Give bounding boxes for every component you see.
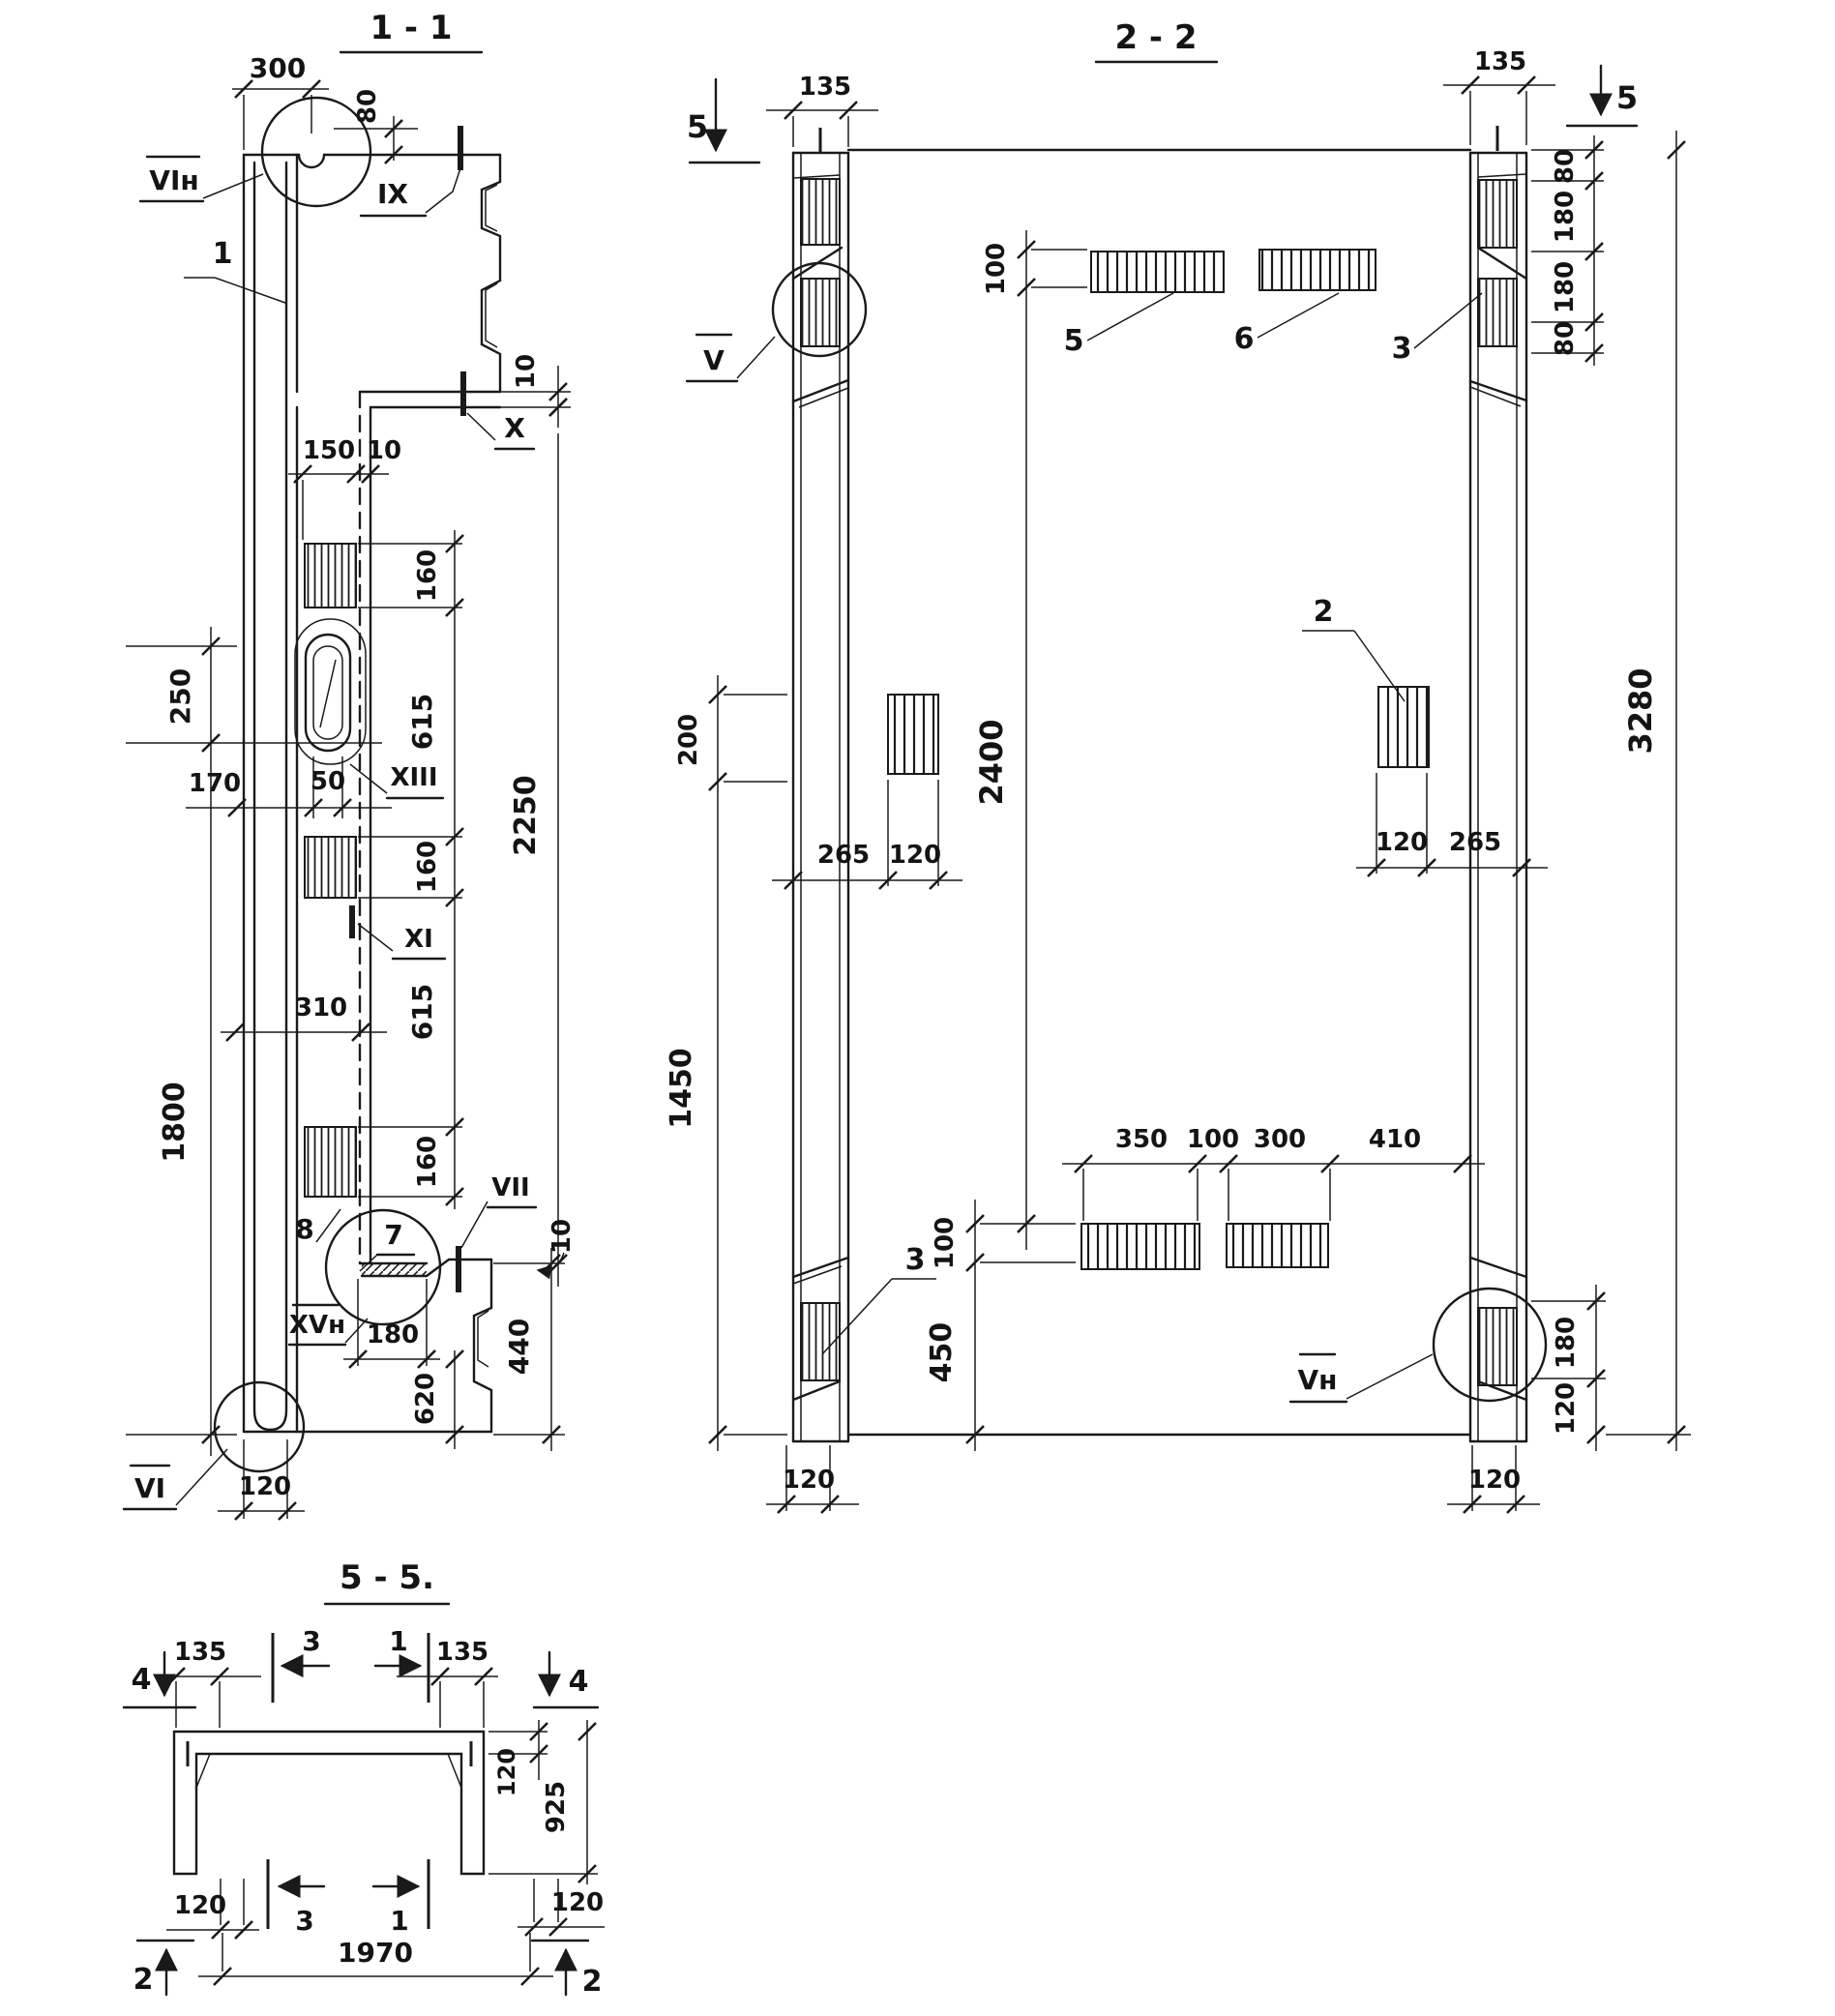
label-vi: VI [124, 1449, 227, 1509]
svg-text:7: 7 [384, 1219, 402, 1251]
svg-text:450: 450 [925, 1322, 959, 1383]
svg-text:5: 5 [1064, 324, 1084, 358]
svg-text:120: 120 [889, 841, 941, 870]
dim-180-120-right: 180 120 [1531, 1285, 1606, 1451]
section-1-1-title: 1 - 1 [370, 9, 452, 47]
svg-text:120: 120 [1552, 1382, 1581, 1435]
svg-text:120: 120 [493, 1748, 520, 1796]
dim-2250: 2250 [509, 399, 567, 1287]
label-xvn: XVн [289, 1305, 368, 1345]
svg-text:310: 310 [295, 993, 347, 1023]
svg-text:80: 80 [1551, 321, 1580, 356]
label-5: 5 [1064, 293, 1173, 358]
section-2-2: 2 - 2 [665, 18, 1691, 1513]
svg-text:170: 170 [189, 769, 241, 798]
svg-text:3: 3 [1392, 332, 1412, 366]
label-3-top: 3 [1392, 293, 1482, 366]
svg-text:6: 6 [1234, 322, 1255, 356]
cut-arrow-1-top: 1 [375, 1625, 429, 1703]
rebar-bar-6 [1259, 250, 1376, 290]
svg-text:5: 5 [1616, 79, 1638, 116]
dim-chain-top-right: 80 180 180 80 [1531, 135, 1604, 366]
label-vii: VII [461, 1173, 536, 1248]
svg-text:160: 160 [413, 1136, 442, 1188]
dim-310: 310 [221, 993, 387, 1041]
cut-arrow-3-top: 3 [273, 1625, 329, 1703]
dim-120-bottom-left-55: 120 [166, 1879, 259, 1939]
anchor-block [305, 544, 356, 608]
svg-text:160: 160 [413, 549, 442, 602]
dim-120-bottom: 120 [218, 1439, 305, 1520]
dim-120-bottom-right-55: 120 [518, 1879, 605, 1936]
svg-text:120: 120 [174, 1891, 226, 1920]
dim-135-left-55: 135 [160, 1638, 261, 1728]
left-rib [793, 128, 848, 1441]
svg-text:180: 180 [1551, 261, 1580, 313]
svg-text:1: 1 [213, 237, 233, 271]
marker-2-left: 2 [133, 1941, 193, 1997]
svg-text:265: 265 [817, 841, 870, 870]
dim-120-col-left: 120 [766, 1445, 859, 1513]
svg-text:180: 180 [1551, 191, 1580, 243]
dim-150-10: 150 10 [288, 436, 401, 540]
svg-text:180: 180 [367, 1320, 419, 1349]
svg-text:Vн: Vн [1297, 1364, 1337, 1396]
cut-arrow-3-bottom: 3 [268, 1859, 324, 1937]
svg-text:3: 3 [905, 1243, 926, 1277]
dim-135-right: 135 [1443, 47, 1555, 145]
dim-100-2400: 100 2400 [973, 230, 1087, 1250]
svg-text:1450: 1450 [665, 1048, 698, 1129]
drawing-sheet: 1 - 1 [0, 0, 1835, 2016]
svg-text:100: 100 [1187, 1125, 1239, 1154]
channel-profile [174, 1732, 484, 1874]
dim-100-450: 100 450 [925, 1200, 1076, 1451]
rebar-bar-5 [1091, 252, 1224, 292]
svg-text:1970: 1970 [338, 1937, 413, 1969]
svg-text:XIII: XIII [390, 763, 437, 792]
svg-text:4: 4 [569, 1665, 589, 1699]
label-1: 1 [184, 237, 285, 303]
marker-5-left: 5 [687, 79, 759, 163]
svg-text:2: 2 [1314, 595, 1334, 629]
svg-text:2250: 2250 [509, 775, 543, 856]
svg-text:X: X [504, 412, 525, 444]
svg-text:120: 120 [551, 1888, 604, 1917]
label-2: 2 [1302, 595, 1405, 701]
svg-text:2: 2 [133, 1963, 154, 1997]
rebar-hatch-block [1478, 1308, 1517, 1385]
svg-text:265: 265 [1449, 828, 1501, 857]
svg-text:620: 620 [411, 1373, 440, 1425]
label-v: V [687, 335, 775, 381]
label-vn: Vн [1290, 1354, 1433, 1402]
dim-120-col-right: 120 [1447, 1445, 1540, 1513]
svg-text:VII: VII [491, 1173, 529, 1202]
dim-3280: 3280 [1606, 131, 1691, 1451]
label-xiii: XIII [350, 763, 443, 798]
svg-text:160: 160 [413, 841, 442, 893]
dim-135-right-55: 135 [397, 1638, 498, 1728]
svg-text:925: 925 [542, 1781, 571, 1833]
dim-300: 300 [232, 52, 329, 150]
rebar-hatch-block [1478, 279, 1517, 346]
svg-text:180: 180 [1552, 1317, 1581, 1369]
rebar-bar-bottom-left [1081, 1224, 1199, 1269]
mortar-hatch [362, 1263, 427, 1276]
svg-text:135: 135 [436, 1638, 488, 1667]
rebar-bar-bottom-right [1227, 1224, 1328, 1267]
svg-text:XI: XI [404, 925, 433, 954]
label-6: 6 [1234, 293, 1339, 356]
svg-text:1: 1 [389, 1625, 407, 1657]
anchor-block [305, 1127, 356, 1197]
dim-1970: 1970 [198, 1933, 553, 1985]
rebar-hatch-block [1478, 180, 1517, 248]
section-2-2-title: 2 - 2 [1114, 18, 1197, 57]
section-5-5: 5 - 5. 4 4 135 135 3 [124, 1558, 605, 1999]
rebar-hatch-block [801, 179, 840, 245]
svg-text:250: 250 [164, 668, 196, 725]
svg-text:120: 120 [783, 1466, 835, 1495]
label-ix: IX [361, 168, 460, 216]
svg-text:615: 615 [406, 984, 438, 1040]
svg-text:3280: 3280 [1622, 667, 1659, 754]
svg-text:200: 200 [674, 714, 703, 766]
section-1-1: 1 - 1 [124, 9, 577, 1520]
svg-text:300: 300 [250, 52, 306, 84]
svg-text:100: 100 [982, 243, 1011, 295]
dim-440: 440 [493, 1248, 565, 1451]
svg-text:80: 80 [353, 89, 382, 124]
label-x: X [467, 412, 534, 449]
marker-5-right: 5 [1567, 66, 1638, 126]
cut-arrow-1-bottom: 1 [373, 1859, 429, 1937]
svg-text:2: 2 [582, 1965, 603, 1999]
svg-text:615: 615 [406, 694, 438, 750]
lifting-hook [299, 155, 324, 167]
svg-text:4: 4 [132, 1663, 152, 1697]
svg-text:350: 350 [1115, 1125, 1168, 1154]
svg-text:V: V [703, 344, 725, 376]
svg-text:410: 410 [1369, 1125, 1421, 1154]
rebar-u-loop [254, 1403, 286, 1430]
svg-text:80: 80 [1551, 149, 1580, 184]
svg-text:10: 10 [512, 354, 541, 389]
rebar-bar-mid-left [888, 695, 938, 774]
panel-outline-1-1 [244, 155, 500, 1432]
svg-text:3: 3 [302, 1625, 320, 1657]
svg-text:VI: VI [134, 1472, 165, 1504]
svg-text:8: 8 [295, 1213, 313, 1245]
svg-text:IX: IX [377, 178, 408, 210]
svg-text:135: 135 [174, 1638, 226, 1667]
rebar-hatch-block [801, 279, 840, 346]
svg-text:10: 10 [367, 436, 401, 465]
svg-text:100: 100 [931, 1217, 960, 1269]
svg-text:120: 120 [1376, 828, 1428, 857]
dim-80: 80 [334, 89, 418, 163]
marker-2-right: 2 [532, 1941, 602, 1999]
dim-120-265-right: 120 265 [1356, 773, 1548, 876]
svg-text:300: 300 [1254, 1125, 1306, 1154]
anchor-block [305, 837, 356, 898]
svg-text:135: 135 [799, 73, 851, 102]
dim-180: 180 [343, 1279, 440, 1368]
dim-120-slab: 120 [488, 1720, 548, 1796]
svg-text:5: 5 [687, 108, 708, 145]
svg-text:3: 3 [295, 1905, 313, 1937]
dim-chain-bottom: 350 100 300 410 [1062, 1125, 1485, 1221]
section-5-5-title: 5 - 5. [340, 1558, 434, 1597]
dim-925: 925 [488, 1720, 598, 1884]
dim-200-1450: 200 1450 [665, 675, 787, 1451]
svg-text:VIн: VIн [149, 164, 198, 196]
svg-text:120: 120 [1468, 1466, 1521, 1495]
right-rib [1470, 126, 1526, 1441]
svg-text:1: 1 [390, 1905, 408, 1937]
svg-text:50: 50 [311, 767, 345, 796]
dim-chain-right: 160 615 160 615 160 [358, 530, 463, 1209]
svg-text:2400: 2400 [973, 719, 1010, 805]
svg-text:440: 440 [503, 1319, 535, 1375]
svg-text:XVн: XVн [289, 1311, 345, 1340]
dim-135-left: 135 [766, 73, 878, 147]
svg-text:135: 135 [1474, 47, 1526, 76]
svg-text:150: 150 [303, 436, 355, 465]
svg-text:1800: 1800 [158, 1082, 192, 1163]
svg-text:120: 120 [239, 1472, 291, 1501]
marker-4-right: 4 [534, 1652, 598, 1707]
